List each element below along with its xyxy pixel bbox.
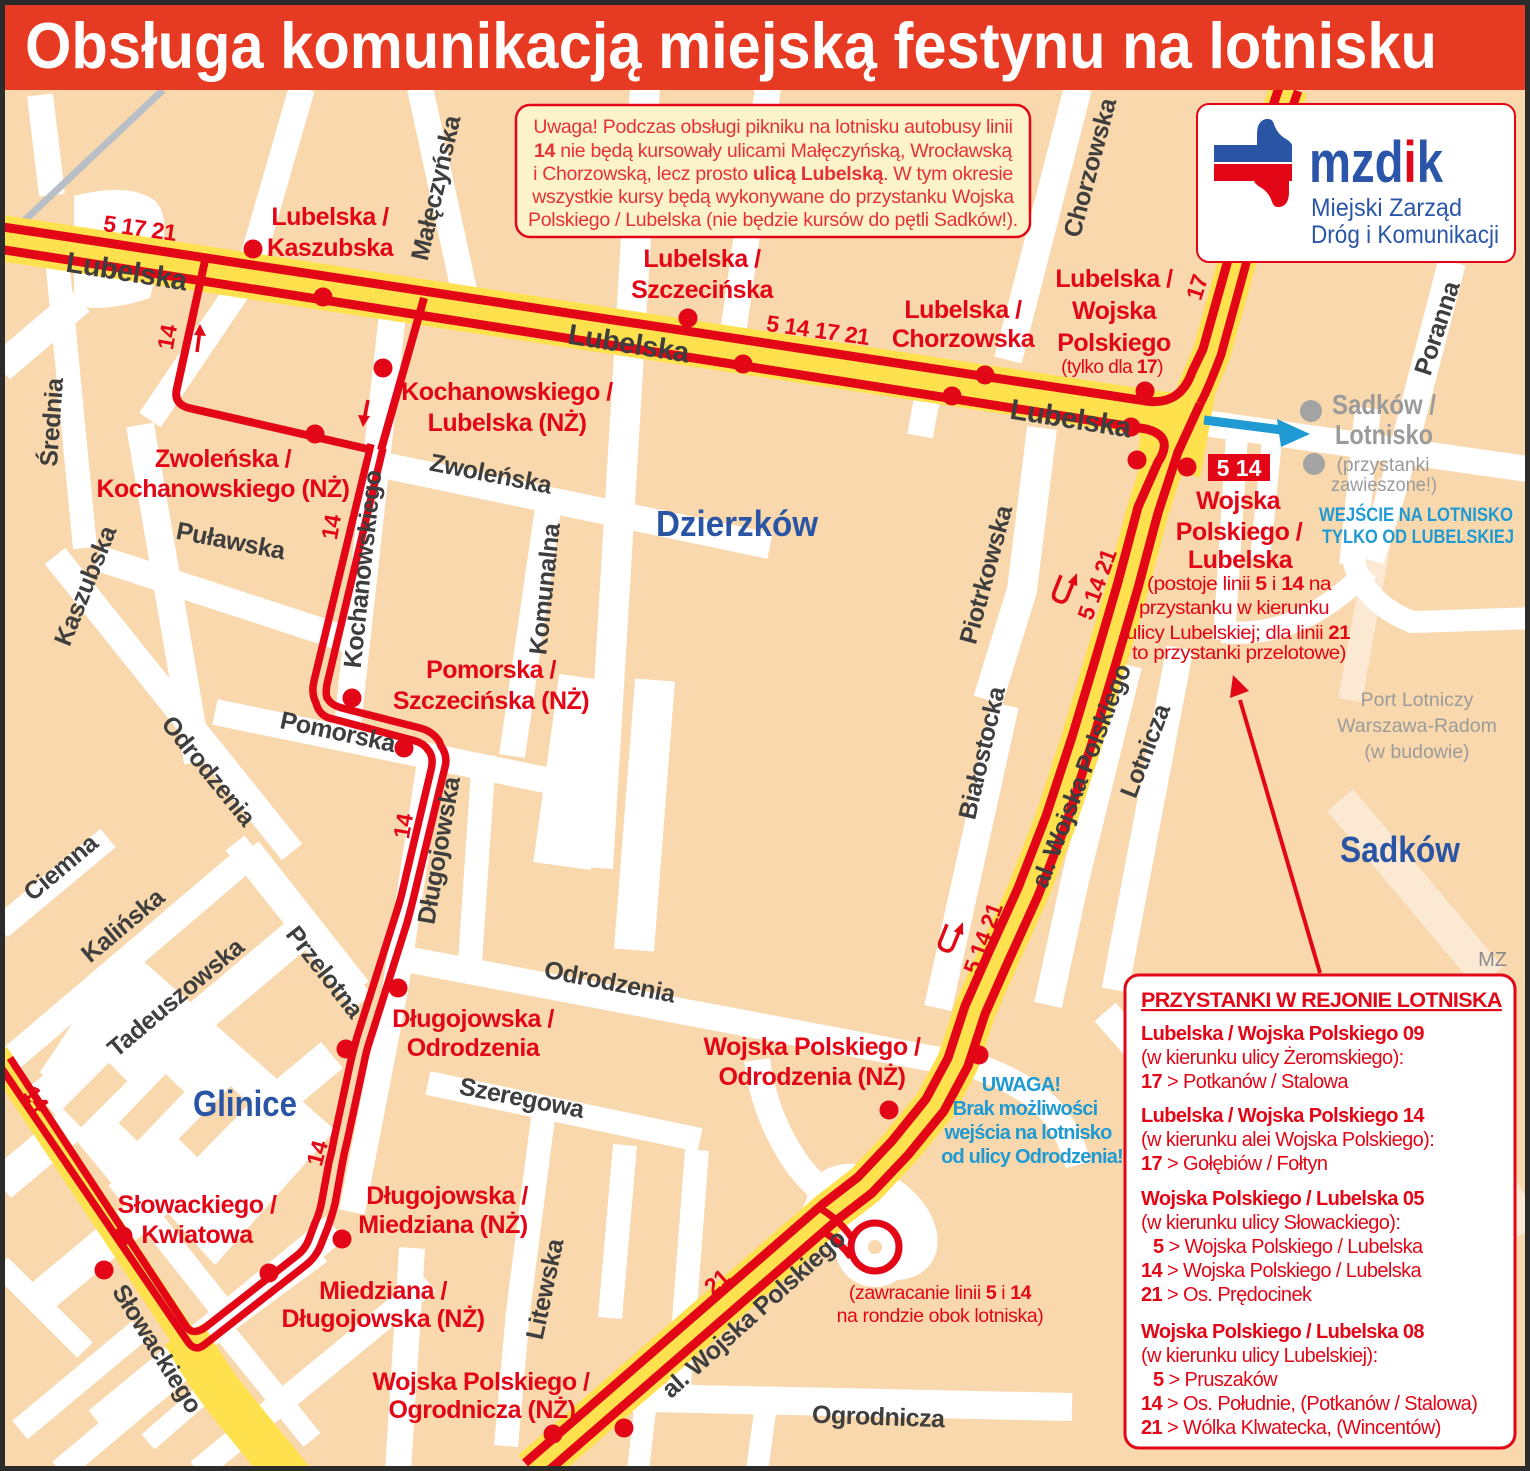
svg-text:Długojowska /: Długojowska / <box>366 1182 528 1210</box>
svg-text:zawieszone!): zawieszone!) <box>1331 475 1437 496</box>
svg-text:Lubelska / Wojska Polskiego 14: Lubelska / Wojska Polskiego 14 <box>1141 1105 1425 1127</box>
svg-text:Zwoleńska /: Zwoleńska / <box>155 445 292 473</box>
svg-text:Lubelska /: Lubelska / <box>904 296 1022 324</box>
svg-text:TYLKO OD LUBELSKIEJ: TYLKO OD LUBELSKIEJ <box>1322 527 1514 548</box>
svg-text:Kwiatowa: Kwiatowa <box>141 1221 254 1249</box>
svg-text:MZ: MZ <box>1478 949 1507 971</box>
svg-text:Miejski Zarząd: Miejski Zarząd <box>1311 194 1462 222</box>
svg-text:Sadków: Sadków <box>1340 829 1461 870</box>
svg-text:Chorzowska: Chorzowska <box>892 325 1036 353</box>
svg-text:(w kierunku ulicy Słowackiego): (w kierunku ulicy Słowackiego): <box>1141 1212 1400 1234</box>
svg-text:Miedziana (NŻ): Miedziana (NŻ) <box>358 1211 528 1239</box>
svg-text:Polskiego: Polskiego <box>1057 329 1171 357</box>
svg-text:Wojska Polskiego /: Wojska Polskiego / <box>703 1033 921 1061</box>
svg-text:Słowackiego /: Słowackiego / <box>118 1191 277 1219</box>
svg-text:14 > Wojska Polskiego / Lubels: 14 > Wojska Polskiego / Lubelska <box>1141 1260 1423 1282</box>
svg-text:od ulicy Odrodzenia!: od ulicy Odrodzenia! <box>941 1146 1123 1168</box>
svg-text:Lubelska /: Lubelska / <box>1055 265 1173 293</box>
svg-text:Wojska Polskiego / Lubelska 08: Wojska Polskiego / Lubelska 08 <box>1141 1321 1424 1343</box>
svg-text:Pomorska /: Pomorska / <box>426 656 556 684</box>
svg-text:Odrodzenia: Odrodzenia <box>407 1034 541 1062</box>
svg-text:Miedziana /: Miedziana / <box>319 1277 447 1305</box>
svg-text:Kochanowskiego /: Kochanowskiego / <box>401 378 613 406</box>
svg-text:Brak możliwości: Brak możliwości <box>953 1098 1098 1120</box>
svg-text:Warszawa-Radom: Warszawa-Radom <box>1337 715 1497 737</box>
svg-text:(w kierunku ulicy Lubelskiej):: (w kierunku ulicy Lubelskiej): <box>1141 1345 1378 1367</box>
svg-text:Kaszubska: Kaszubska <box>267 234 395 262</box>
svg-text:Lubelska / Wojska Polskiego 09: Lubelska / Wojska Polskiego 09 <box>1141 1023 1424 1045</box>
svg-text:Wojska Polskiego /: Wojska Polskiego / <box>372 1368 590 1396</box>
svg-text:(tylko dla 17): (tylko dla 17) <box>1061 357 1163 378</box>
svg-text:Lotnisko: Lotnisko <box>1335 419 1433 450</box>
svg-text:21 > Os. Prędocinek: 21 > Os. Prędocinek <box>1141 1284 1313 1306</box>
svg-text:Polskiego / Lubelska (nie będz: Polskiego / Lubelska (nie będzie kursów … <box>528 209 1018 231</box>
svg-text:(postoje linii 5 i 14 na: (postoje linii 5 i 14 na <box>1147 574 1332 595</box>
svg-text:Długojowska /: Długojowska / <box>392 1005 554 1033</box>
svg-text:14 > Os. Południe, (Potkanów /: 14 > Os. Południe, (Potkanów / Stalowa) <box>1141 1393 1477 1415</box>
svg-text:Lubelska /: Lubelska / <box>643 245 761 273</box>
svg-text:Lubelska /: Lubelska / <box>271 203 389 231</box>
svg-text:(w kierunku ulicy Żeromskiego): (w kierunku ulicy Żeromskiego): <box>1141 1046 1404 1069</box>
svg-text:Wojska Polskiego / Lubelska 05: Wojska Polskiego / Lubelska 05 <box>1141 1188 1424 1210</box>
svg-text:Sadków /: Sadków / <box>1332 389 1436 420</box>
svg-text:5 > Wojska Polskiego / Lubelsk: 5 > Wojska Polskiego / Lubelska <box>1153 1236 1424 1258</box>
svg-text:Uwaga! Podczas obsługi pikniku: Uwaga! Podczas obsługi pikniku na lotnis… <box>533 116 1012 138</box>
svg-text:17 > Gołębiów / Fołtyn: 17 > Gołębiów / Fołtyn <box>1141 1153 1327 1175</box>
svg-text:Ogrodnicza: Ogrodnicza <box>812 1401 947 1434</box>
svg-text:Wojska: Wojska <box>1196 487 1282 515</box>
svg-text:Kochanowskiego (NŻ): Kochanowskiego (NŻ) <box>96 475 349 503</box>
svg-text:Ogrodnicza (NŻ): Ogrodnicza (NŻ) <box>389 1396 576 1424</box>
svg-text:5 > Pruszaków: 5 > Pruszaków <box>1153 1369 1278 1391</box>
svg-text:mzdik: mzdik <box>1309 130 1444 195</box>
svg-text:i Chorzowską, lecz prosto ulic: i Chorzowską, lecz prosto ulicą Lubelską… <box>533 163 1013 185</box>
svg-text:Polskiego /: Polskiego / <box>1176 518 1303 546</box>
svg-text:PRZYSTANKI W REJONIE LOTNISKA: PRZYSTANKI W REJONIE LOTNISKA <box>1141 988 1502 1012</box>
svg-text:Obsługa komunikacją miejską fe: Obsługa komunikacją miejską festynu na l… <box>25 9 1437 82</box>
svg-text:Odrodzenia (NŻ): Odrodzenia (NŻ) <box>719 1063 906 1091</box>
svg-text:WEJŚCIE NA LOTNISKO: WEJŚCIE NA LOTNISKO <box>1319 504 1513 526</box>
svg-text:21 > Wólka Klwatecka, (Wincent: 21 > Wólka Klwatecka, (Wincentów) <box>1141 1417 1441 1439</box>
svg-text:Lubelska: Lubelska <box>1188 546 1294 574</box>
svg-text:Długojowska (NŻ): Długojowska (NŻ) <box>281 1305 484 1333</box>
svg-text:UWAGA!: UWAGA! <box>982 1074 1061 1096</box>
svg-text:(zawracanie linii 5 i 14: (zawracanie linii 5 i 14 <box>849 1282 1032 1304</box>
svg-text:to przystanki przelotowe): to przystanki przelotowe) <box>1132 643 1346 664</box>
svg-text:17 > Potkanów / Stalowa: 17 > Potkanów / Stalowa <box>1141 1071 1349 1093</box>
svg-text:Szczecińska: Szczecińska <box>631 276 774 304</box>
svg-text:(w kierunku alei Wojska Polski: (w kierunku alei Wojska Polskiego): <box>1141 1129 1434 1151</box>
svg-text:wejścia na lotnisko: wejścia na lotnisko <box>943 1122 1112 1144</box>
svg-text:ulicy Lubelskiej; dla linii 21: ulicy Lubelskiej; dla linii 21 <box>1126 623 1351 644</box>
svg-text:Glinice: Glinice <box>193 1083 297 1124</box>
svg-text:na rondzie obok lotniska): na rondzie obok lotniska) <box>837 1305 1044 1327</box>
svg-text:wszystkie kursy będą wykonywan: wszystkie kursy będą wykonywane do przys… <box>531 186 1014 208</box>
svg-text:Dzierzków: Dzierzków <box>656 503 819 544</box>
svg-text:przystanku w kierunku: przystanku w kierunku <box>1139 598 1329 619</box>
svg-text:Port Lotniczy: Port Lotniczy <box>1361 689 1474 711</box>
svg-text:Szczecińska (NŻ): Szczecińska (NŻ) <box>393 687 589 715</box>
svg-text:(w budowie): (w budowie) <box>1364 741 1469 763</box>
svg-text:(przystanki: (przystanki <box>1337 455 1430 476</box>
svg-text:5 14: 5 14 <box>1217 455 1262 481</box>
svg-text:Lubelska (NŻ): Lubelska (NŻ) <box>428 409 587 437</box>
svg-text:Dróg i Komunikacji: Dróg i Komunikacji <box>1311 221 1499 249</box>
svg-text:14 nie będą kursowały ulicami: 14 nie będą kursowały ulicami Małęczyńsk… <box>534 140 1012 162</box>
svg-text:Wojska: Wojska <box>1072 297 1158 325</box>
